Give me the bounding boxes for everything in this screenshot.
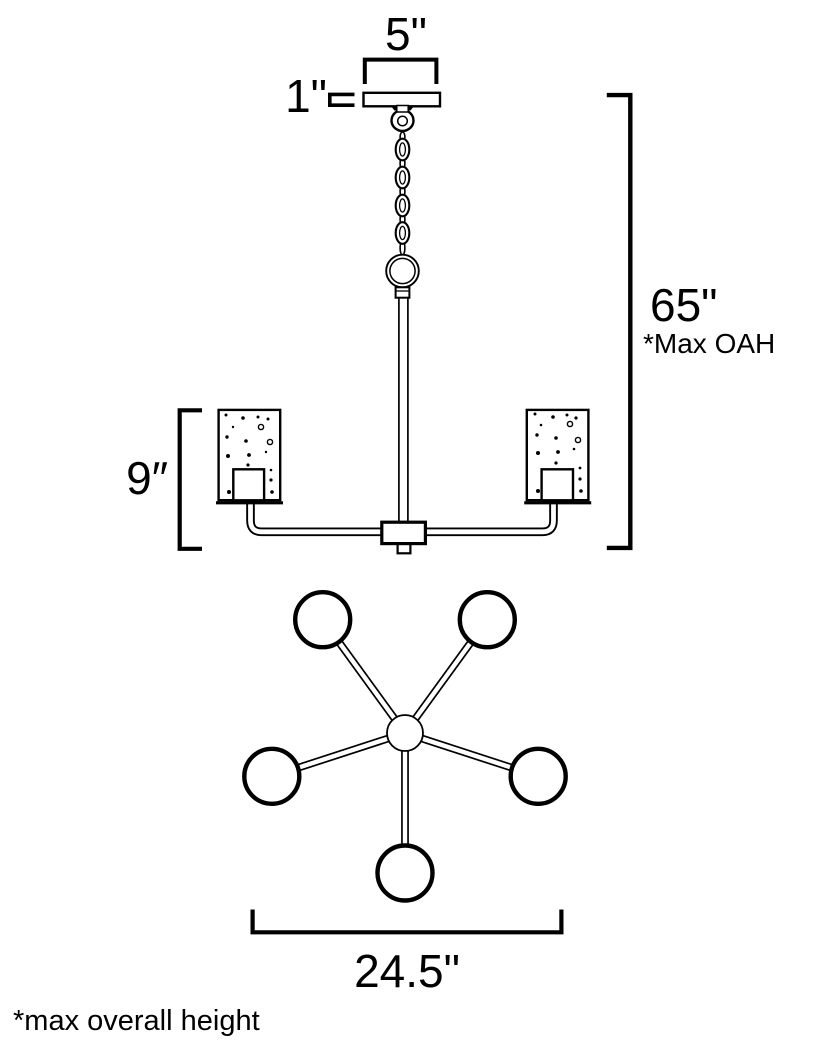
spread-dimension: 24.5" <box>253 910 562 998</box>
chain-link <box>396 195 410 217</box>
shackle-hole <box>398 116 408 126</box>
footnote: *max overall height <box>13 1005 260 1037</box>
top-view-shade <box>511 749 566 804</box>
hang-ring <box>386 255 419 288</box>
canopy <box>364 93 441 107</box>
canopy-width-bracket <box>365 60 437 84</box>
top-view-shade <box>244 749 299 804</box>
hang-assembly <box>391 106 415 132</box>
spread-label: 24.5" <box>354 945 460 997</box>
canopy-height-label: 1" <box>285 70 327 122</box>
side-view: 5" 1" <box>126 8 775 553</box>
shade-socket <box>542 469 573 500</box>
left-shade <box>216 410 283 503</box>
chain-link <box>396 222 410 244</box>
left-arm <box>251 502 386 532</box>
chain <box>396 132 410 255</box>
overall-height-note: *Max OAH <box>643 328 775 359</box>
canopy-width-dimension: 5" <box>365 8 437 84</box>
down-rod <box>399 298 408 524</box>
top-view-shade <box>460 592 515 647</box>
shade-height-label: 9″ <box>126 452 168 504</box>
ferrule <box>396 287 410 297</box>
overall-height-bracket <box>607 95 631 548</box>
right-arm <box>424 502 554 532</box>
canopy-height-dimension: 1" <box>285 70 354 122</box>
center-hub <box>382 522 426 543</box>
shade-socket <box>233 469 264 500</box>
shade-height-dimension: 9″ <box>126 410 202 549</box>
top-view-shade <box>378 846 433 901</box>
chain-link <box>396 139 410 161</box>
overall-height-label: 65" <box>650 279 718 331</box>
top-view-shade <box>295 592 350 647</box>
right-shade <box>524 410 591 503</box>
chandelier-dimension-drawing: 5" 1" <box>0 0 835 1042</box>
chain-link <box>396 167 410 189</box>
shackle-neck <box>397 106 408 113</box>
dimension-diagram: 5" 1" <box>0 0 835 1042</box>
spread-bracket <box>253 910 562 933</box>
canopy-width-label: 5" <box>385 8 427 60</box>
shade-height-bracket <box>180 410 202 549</box>
canopy-height-bracket <box>330 94 355 105</box>
overall-height-dimension: 65" *Max OAH <box>607 95 775 548</box>
top-view-center-hub <box>387 715 423 751</box>
top-view: 24.5" <box>244 592 565 997</box>
